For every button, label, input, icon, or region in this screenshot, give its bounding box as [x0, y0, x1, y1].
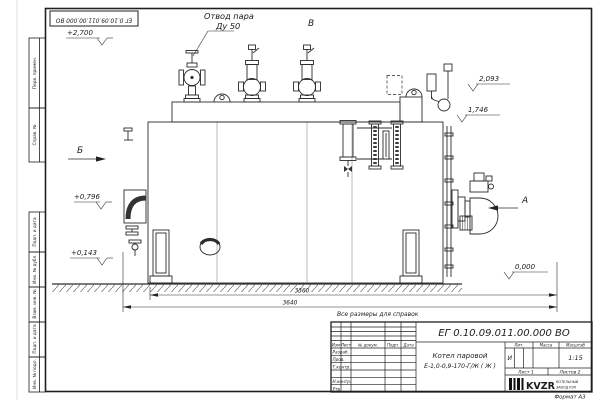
lifting-lug-left — [214, 94, 230, 102]
top-platform — [172, 97, 422, 122]
frame-label-inv-podl: Инв. № подл. — [32, 359, 38, 389]
tb-lit-value: И — [507, 355, 512, 362]
view-label-b: Б — [77, 146, 83, 156]
tb-sheet-cell: Лист 1 — [517, 369, 534, 375]
tb-header-scale: Масштаб — [566, 343, 586, 348]
tb-row-tkontr: Т.контр. — [333, 365, 351, 370]
support-leg-left — [150, 230, 172, 283]
kvzr-logo: KVZR КОТЕЛЬНЫЙ ЗАВОД РЭП — [509, 378, 579, 392]
elevation-2093: 2,093 — [479, 75, 499, 83]
view-label-a: А — [521, 196, 528, 206]
tb-row-nkontr: Н.контр. — [333, 379, 352, 384]
tb-header-list: Лист — [340, 343, 352, 348]
frame-label-podp-data-2: Подп. и дата — [32, 324, 38, 354]
product-name-line1: Котел паровой — [433, 352, 488, 360]
view-a-arrowhead — [488, 205, 498, 210]
burner-assembly — [452, 173, 498, 234]
water-level-gauges — [340, 121, 403, 178]
tb-row-razrab: Разраб. — [333, 350, 349, 355]
frame-label-inv-dubl: Инв. № дубл. — [32, 254, 38, 283]
steam-outlet-valve — [179, 51, 205, 103]
view-label-v: В — [308, 19, 314, 29]
tb-scale-value: 1:15 — [568, 354, 583, 362]
product-name-line2: Е-1,0-0,9-170-Г/Ж ( Ж ) — [424, 363, 496, 370]
blowdown-valves — [126, 226, 141, 256]
format-label: Формат А3 — [554, 395, 586, 400]
steam-outlet-leader-line — [193, 31, 234, 56]
tb-row-prov: Пров. — [333, 357, 345, 362]
tb-header-data: Дата — [402, 343, 414, 348]
steam-outlet-label-line1: Отвод пара — [204, 11, 254, 21]
kvzr-logo-sub1: КОТЕЛЬНЫЙ — [556, 379, 579, 384]
lifting-lug-right — [406, 89, 422, 97]
title-block-text: ЕГ 0.10.09.011.00.000 ВО Изм Лист № доку… — [332, 328, 586, 400]
ground-line — [52, 284, 462, 292]
view-b-arrowhead — [96, 156, 106, 161]
safety-valve-1 — [239, 45, 266, 102]
dimension-3360: 3360 — [295, 289, 310, 295]
elevation-0143: +0,143 — [71, 249, 97, 257]
support-leg-right — [400, 230, 422, 283]
frame-label-perv-primen: Перв. примен. — [32, 57, 38, 89]
elevation-2700: +2,700 — [67, 29, 93, 37]
frame-label-podp-data-1: Подп. и дата — [32, 217, 38, 247]
economizer-box — [124, 190, 146, 223]
pressure-gauge-assembly — [387, 64, 452, 111]
safety-valve-2 — [294, 45, 321, 102]
top-left-stamp: ЕГ 0.10.09.011.00.000 ВО — [50, 11, 138, 26]
stamp-drawing-number: ЕГ 0.10.09.011.00.000 ВО — [55, 17, 132, 23]
tb-header-mass: Масса — [540, 343, 553, 348]
frame-label-sprav-no: Справ. № — [32, 124, 38, 145]
tb-row-utv: Утв. — [333, 387, 342, 392]
dimensions — [123, 252, 557, 312]
title-doc-number: ЕГ 0.10.09.011.00.000 ВО — [438, 328, 570, 339]
boiler-side-view — [52, 45, 498, 292]
steam-outlet-label-line2: Ду 50 — [215, 21, 240, 31]
drawing-sheet: Перв. примен. Справ. № Подп. и дата Инв.… — [0, 0, 600, 400]
kvzr-logo-icon — [509, 378, 524, 390]
tb-header-izm: Изм — [332, 343, 340, 348]
elevation-1746: 1,746 — [468, 106, 489, 114]
kvzr-logo-text: KVZR — [526, 381, 556, 392]
left-top-fitting — [124, 128, 133, 140]
frame-label-vzam-inv: Взам. инв. № — [32, 289, 38, 319]
reference-note: Все размеры для справок — [337, 311, 419, 318]
dimension-3640: 3640 — [283, 301, 298, 307]
tb-header-docnum: № докум. — [357, 343, 378, 348]
frame-left-column-labels: Перв. примен. Справ. № Подп. и дата Инв.… — [32, 57, 38, 389]
boiler-general-view-drawing: Перв. примен. Справ. № Подп. и дата Инв.… — [0, 0, 600, 400]
elevation-0796: +0,796 — [74, 193, 100, 201]
elevation-0000: 0,000 — [515, 263, 536, 271]
tb-sheets-cell: Листов 2 — [558, 369, 580, 375]
kvzr-logo-sub2: ЗАВОД РЭП — [556, 386, 577, 390]
tb-header-lit: Лит. — [513, 343, 523, 348]
tb-header-podp: Подп. — [387, 343, 399, 348]
